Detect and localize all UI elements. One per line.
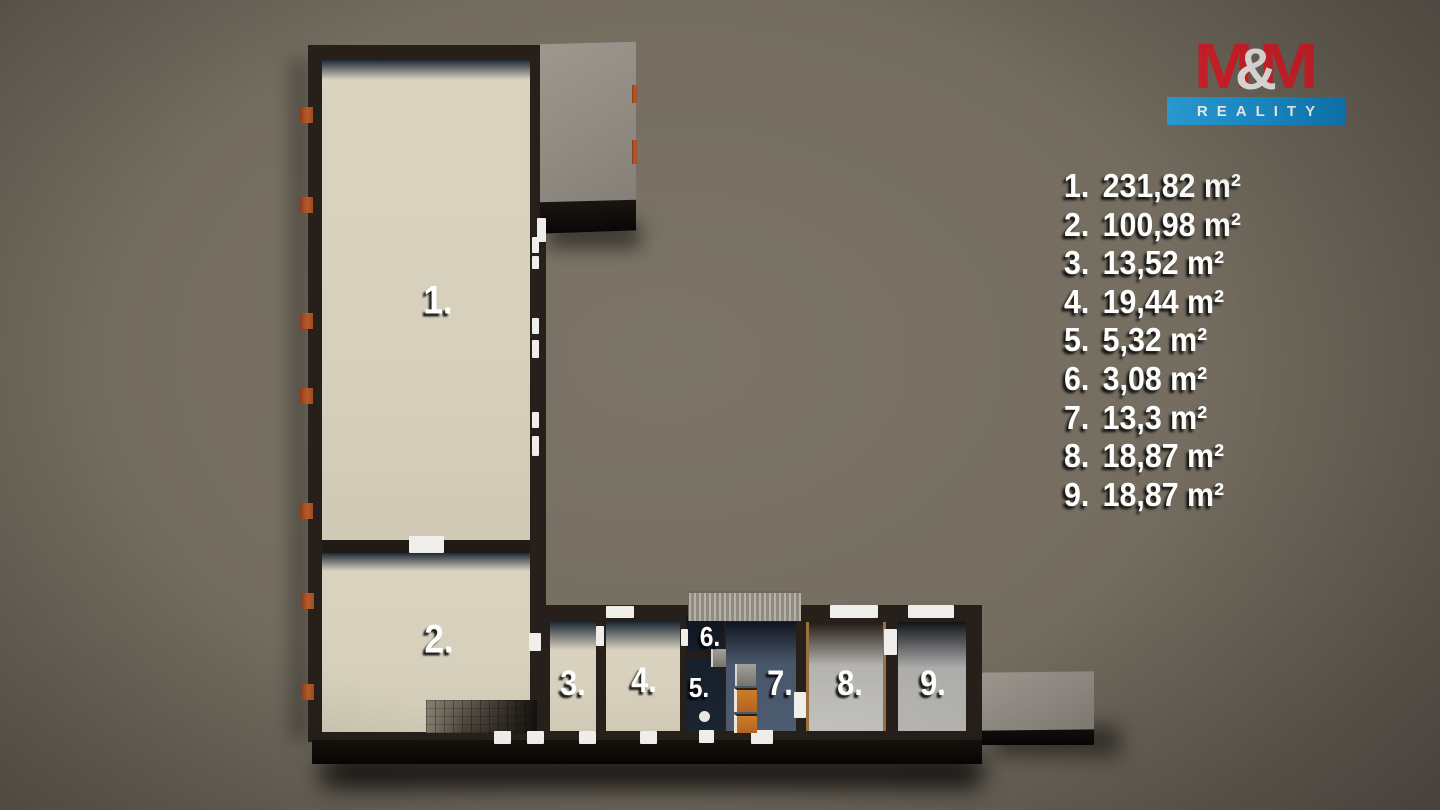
door-opening <box>579 731 596 744</box>
legend-number: 9. <box>1064 476 1101 515</box>
legend-area-value: 100,98 m² <box>1103 206 1241 245</box>
toilet-stall <box>734 714 757 733</box>
room-9-label: 9. <box>920 664 946 704</box>
legend-row: 2. 100,98 m² <box>1064 206 1241 245</box>
toilet <box>699 711 710 722</box>
window-marker-white <box>532 436 539 456</box>
room-2-wall-shadow <box>322 553 530 571</box>
legend-row: 7. 13,3 m² <box>1064 399 1241 438</box>
floorplan-render: 1. 2. 3. 4. 5. 6. 7. 8. 9. 1. 231,82 m² … <box>0 0 1440 810</box>
room-3-label: 3. <box>560 664 586 704</box>
room-5-label: 5. <box>689 672 710 704</box>
door-room7-room8 <box>794 692 806 718</box>
ribbed-canopy <box>688 591 801 621</box>
legend-area-value: 18,87 m² <box>1103 476 1225 515</box>
legend-number: 7. <box>1064 399 1101 438</box>
window-marker-orange <box>300 388 313 404</box>
window-opening <box>908 605 954 618</box>
legend-row: 5. 5,32 m² <box>1064 321 1241 360</box>
logo-subtitle: REALITY <box>1188 103 1324 120</box>
room-4-wall-shadow <box>606 622 680 650</box>
window-opening <box>830 605 878 618</box>
legend-area-value: 3,08 m² <box>1103 360 1208 399</box>
legend-row: 4. 19,44 m² <box>1064 283 1241 322</box>
legend-number: 2. <box>1064 206 1101 245</box>
legend-area-value: 5,32 m² <box>1103 321 1208 360</box>
legend-number: 4. <box>1064 283 1101 322</box>
staircase <box>426 700 537 733</box>
logo-ampersand: & <box>1235 40 1277 100</box>
window-marker-orange <box>632 140 637 164</box>
mm-reality-logo: M & M REALITY <box>1167 36 1345 125</box>
garage-roof <box>540 42 636 203</box>
window-marker-orange <box>301 684 314 700</box>
door-jamb <box>681 629 688 646</box>
room-1-label: 1. <box>423 279 452 324</box>
window-marker-orange <box>300 197 313 213</box>
door-jamb <box>596 626 604 646</box>
area-legend: 1. 231,82 m² 2. 100,98 m² 3. 13,52 m² 4.… <box>1064 167 1256 514</box>
legend-number: 3. <box>1064 244 1101 283</box>
window-marker-orange <box>301 593 314 609</box>
legend-area-value: 13,3 m² <box>1103 399 1208 438</box>
door-opening <box>699 730 714 743</box>
window-marker-orange <box>632 85 637 103</box>
legend-number: 6. <box>1064 360 1101 399</box>
door-room2-wing <box>529 633 541 651</box>
window-marker-orange <box>300 313 313 329</box>
room-3-wall-shadow <box>550 622 596 650</box>
window-marker-orange <box>300 503 313 519</box>
room-6-label: 6. <box>700 621 721 653</box>
window-marker-white <box>532 318 539 334</box>
window-marker-orange <box>300 107 313 123</box>
room-1-wall-shadow <box>322 60 530 80</box>
legend-row: 8. 18,87 m² <box>1064 437 1241 476</box>
window-marker-white <box>537 218 546 242</box>
toilet-stall <box>734 688 757 712</box>
legend-row: 3. 13,52 m² <box>1064 244 1241 283</box>
door-room8-room9 <box>884 629 897 655</box>
legend-area-value: 18,87 m² <box>1103 437 1225 476</box>
room-7-label: 7. <box>767 664 793 704</box>
legend-row: 6. 3,08 m² <box>1064 360 1241 399</box>
window-marker-white <box>532 412 539 428</box>
door-opening <box>640 731 657 744</box>
legend-row: 1. 231,82 m² <box>1064 167 1241 206</box>
legend-area-value: 13,52 m² <box>1103 244 1225 283</box>
room-8-label: 8. <box>837 664 863 704</box>
sink-unit <box>735 664 756 686</box>
door-opening <box>494 731 511 744</box>
door-room1-room2 <box>409 536 444 553</box>
legend-number: 1. <box>1064 167 1101 206</box>
window-marker-white <box>532 256 539 269</box>
room-4-label: 4. <box>631 661 657 701</box>
door-opening <box>527 731 544 744</box>
legend-number: 8. <box>1064 437 1101 476</box>
logo-mm-wordmark: M & M <box>1167 36 1345 96</box>
window-marker-white <box>532 340 539 358</box>
legend-number: 5. <box>1064 321 1101 360</box>
room-2-label: 2. <box>424 618 453 663</box>
legend-area-value: 19,44 m² <box>1103 283 1225 322</box>
window-opening <box>606 606 634 618</box>
legend-row: 9. 18,87 m² <box>1064 476 1241 515</box>
legend-area-value: 231,82 m² <box>1103 167 1241 206</box>
outbuilding-roof <box>982 671 1094 730</box>
